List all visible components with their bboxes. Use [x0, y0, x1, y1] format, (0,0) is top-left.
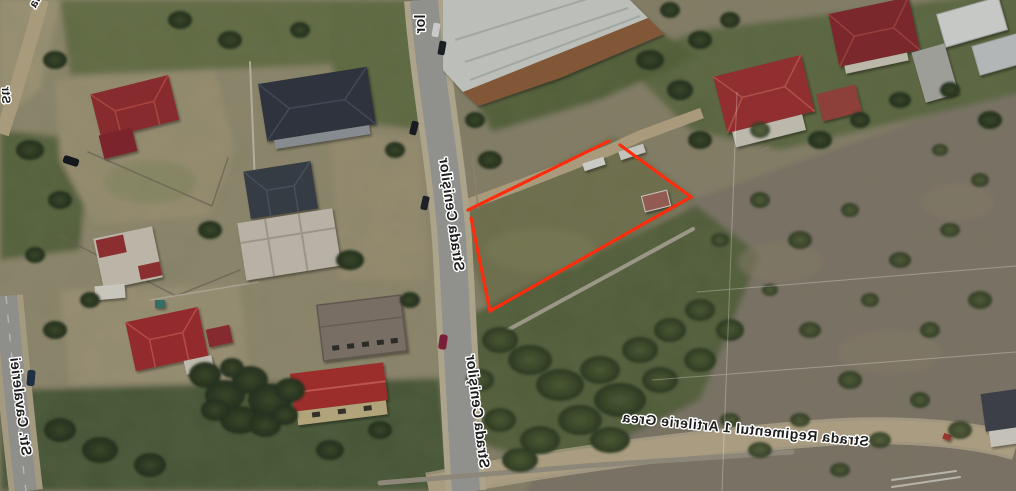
map-canvas: Strada Cenişilor Strada Cenişilor lor St… [0, 0, 1016, 491]
street-label-cenisilor-top-partial: lor [413, 14, 429, 33]
terrain-speckle [0, 0, 1016, 491]
satellite-map-view[interactable]: Strada Cenişilor Strada Cenişilor lor St… [0, 0, 1016, 491]
street-label-fragment-left-edge: Str [0, 86, 13, 103]
